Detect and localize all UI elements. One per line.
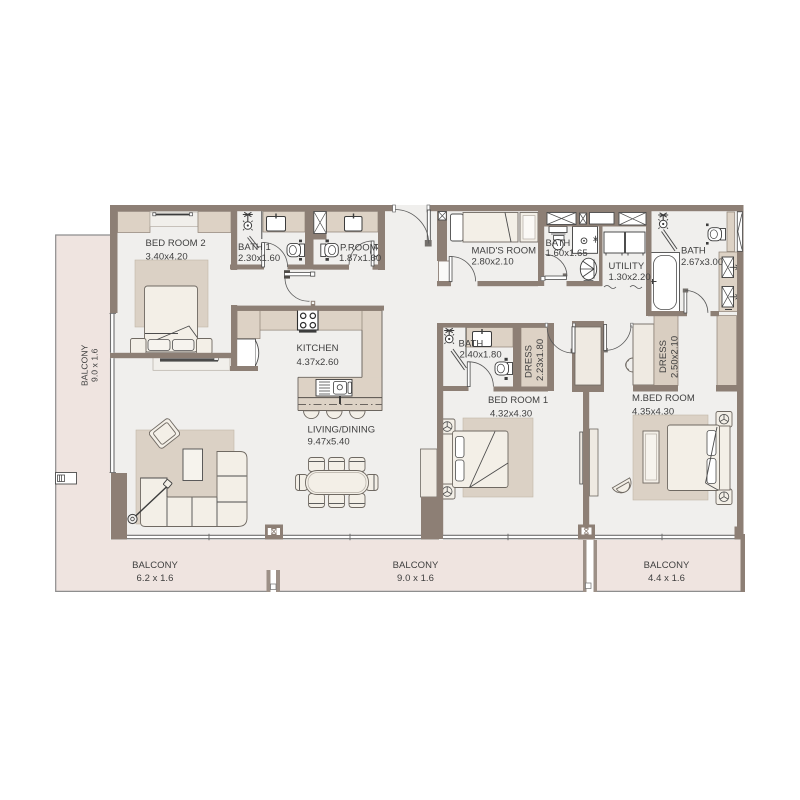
svg-text:2.50x2.10: 2.50x2.10 <box>670 336 681 378</box>
svg-text:4.37x2.60: 4.37x2.60 <box>297 357 339 368</box>
svg-text:DRESS: DRESS <box>658 340 669 373</box>
svg-text:4.35x4.30: 4.35x4.30 <box>632 407 674 418</box>
svg-text:P.ROOM: P.ROOM <box>340 243 378 254</box>
svg-text:6.2 x 1.6: 6.2 x 1.6 <box>137 573 174 584</box>
svg-text:M.BED ROOM: M.BED ROOM <box>632 393 695 404</box>
svg-text:BED ROOM 1: BED ROOM 1 <box>488 395 548 406</box>
svg-text:BED ROOM 2: BED ROOM 2 <box>146 238 206 249</box>
svg-text:9.47x5.40: 9.47x5.40 <box>308 437 350 448</box>
svg-text:9.0 x 1.6: 9.0 x 1.6 <box>90 348 100 382</box>
svg-text:9.0 x 1.6: 9.0 x 1.6 <box>397 573 434 584</box>
svg-text:BALCONY: BALCONY <box>393 560 439 571</box>
svg-text:4.4 x 1.6: 4.4 x 1.6 <box>648 573 685 584</box>
svg-text:2.30x1.60: 2.30x1.60 <box>238 253 280 264</box>
svg-text:BATH: BATH <box>681 246 706 257</box>
svg-text:4.32x4.30: 4.32x4.30 <box>490 409 532 420</box>
svg-text:2.67x3.00: 2.67x3.00 <box>681 257 723 268</box>
svg-text:BATH: BATH <box>459 339 484 350</box>
svg-text:BALCONY: BALCONY <box>80 344 90 386</box>
svg-text:DRESS: DRESS <box>524 345 535 378</box>
svg-text:1.60x1.65: 1.60x1.65 <box>546 248 588 259</box>
svg-text:1.30x2.20: 1.30x2.20 <box>609 272 651 283</box>
svg-text:2.23x1.80: 2.23x1.80 <box>535 339 546 381</box>
svg-text:1.87x1.60: 1.87x1.60 <box>339 253 381 264</box>
svg-text:BATH 1: BATH 1 <box>238 242 271 253</box>
svg-text:MAID'S ROOM: MAID'S ROOM <box>472 246 537 257</box>
svg-text:BALCONY: BALCONY <box>132 560 178 571</box>
svg-text:2.40x1.80: 2.40x1.80 <box>460 350 502 361</box>
svg-text:3.40x4.20: 3.40x4.20 <box>146 252 188 263</box>
svg-text:KITCHEN: KITCHEN <box>297 343 339 354</box>
svg-text:BALCONY: BALCONY <box>644 560 690 571</box>
svg-text:2.80x2.10: 2.80x2.10 <box>472 257 514 268</box>
svg-text:LIVING/DINING: LIVING/DINING <box>308 425 376 436</box>
svg-text:UTILITY: UTILITY <box>609 261 645 272</box>
